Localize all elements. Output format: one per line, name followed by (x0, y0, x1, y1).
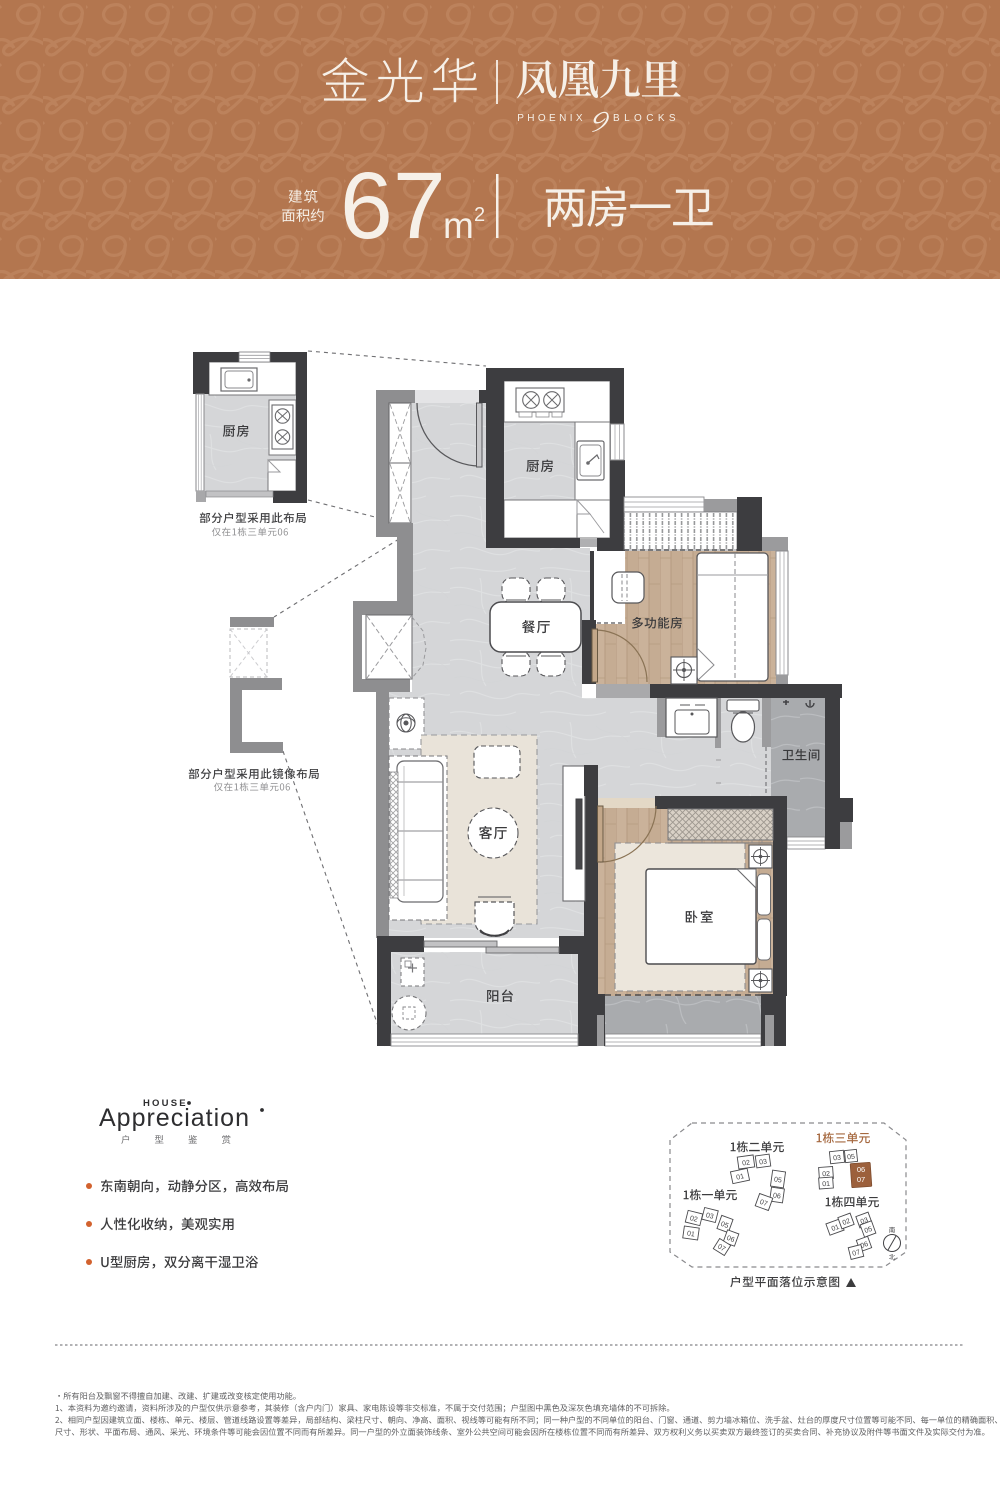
svg-text:02: 02 (742, 1159, 751, 1167)
svg-text:01: 01 (686, 1230, 695, 1238)
svg-text:06: 06 (772, 1192, 781, 1200)
svg-text:PHOENIX: PHOENIX (517, 113, 586, 124)
svg-text:01: 01 (822, 1181, 830, 1189)
svg-text:67: 67 (340, 153, 446, 259)
svg-text:06: 06 (857, 1165, 865, 1174)
svg-text:BLOCKS: BLOCKS (613, 113, 680, 124)
svg-text:03: 03 (833, 1155, 842, 1163)
svg-text:07: 07 (857, 1175, 865, 1184)
svg-text:03: 03 (759, 1158, 768, 1166)
svg-text:Appreciation: Appreciation (99, 1104, 250, 1132)
svg-text:05: 05 (773, 1176, 782, 1184)
svg-text:m: m (443, 205, 474, 246)
svg-text:2: 2 (474, 204, 485, 226)
svg-text:05: 05 (847, 1154, 856, 1162)
